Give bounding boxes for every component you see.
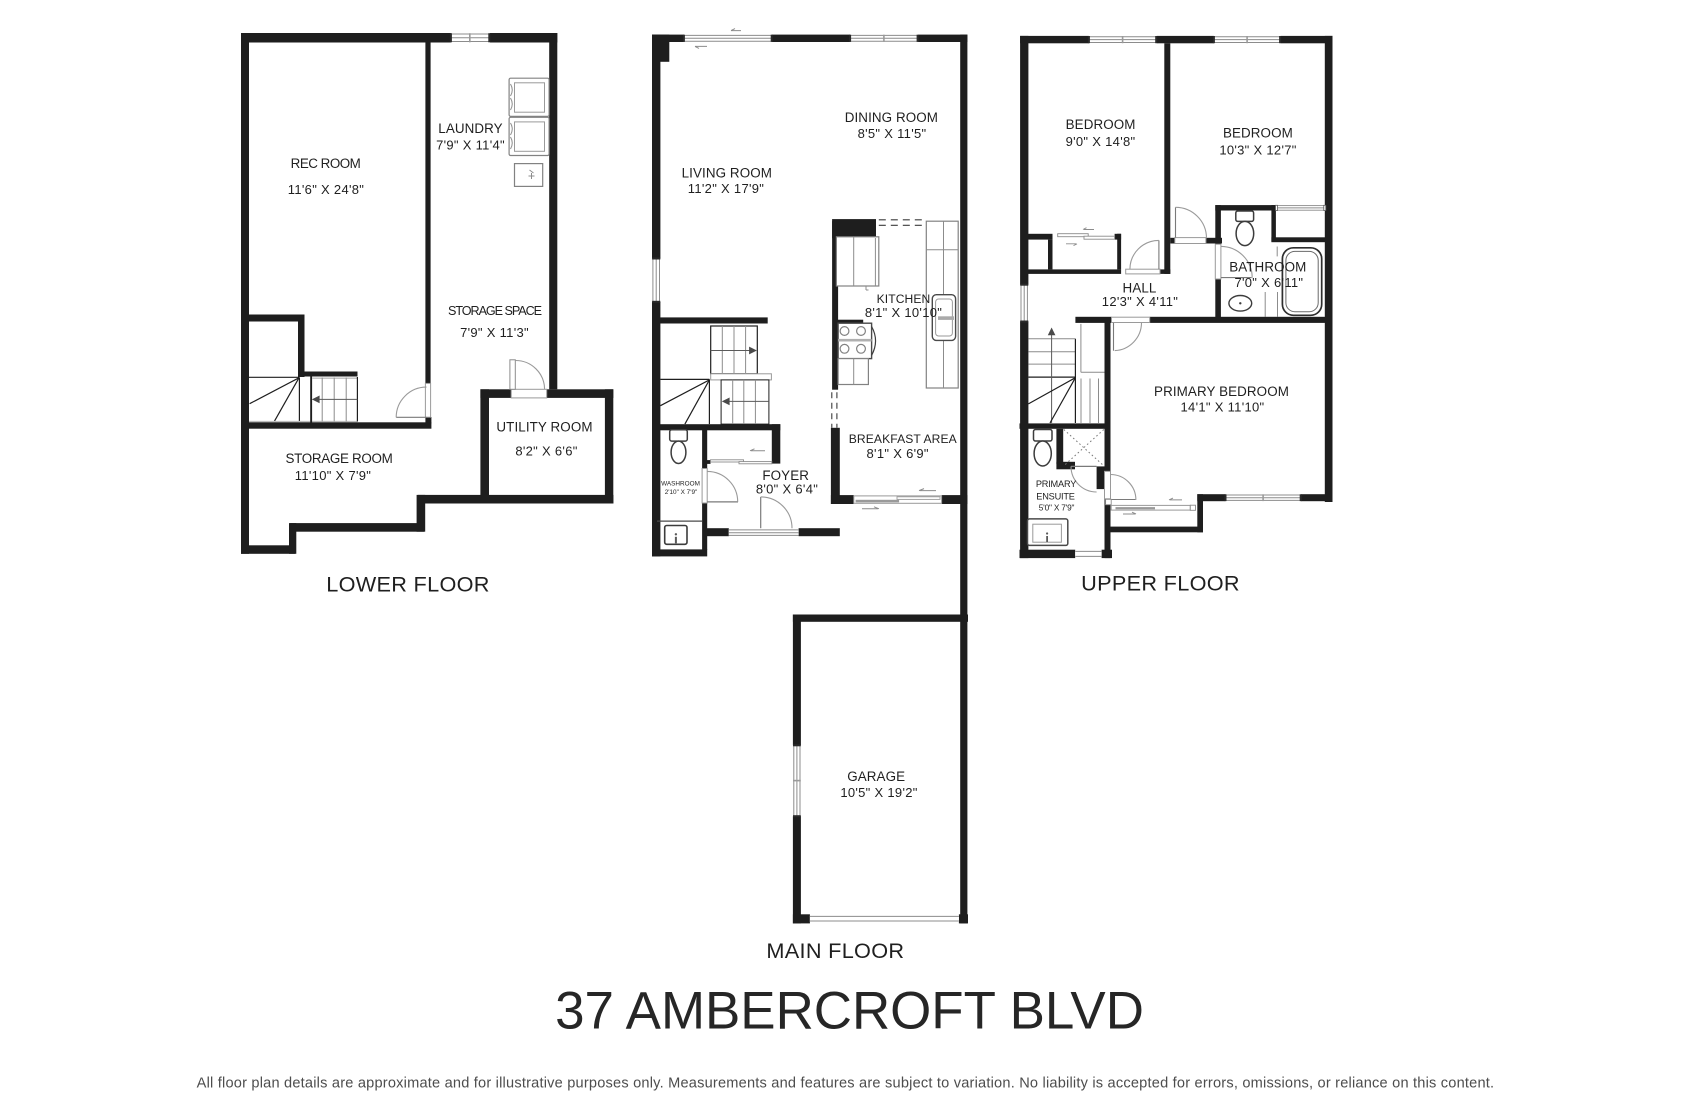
svg-text:7'0" X 6'11": 7'0" X 6'11": [1234, 275, 1303, 290]
svg-text:LOWER FLOOR: LOWER FLOOR: [326, 572, 490, 597]
svg-text:12'3" X 4'11": 12'3" X 4'11": [1102, 294, 1178, 309]
svg-text:DINING ROOM: DINING ROOM: [845, 110, 938, 125]
svg-text:MAIN FLOOR: MAIN FLOOR: [766, 938, 904, 963]
svg-text:BREAKFAST AREA: BREAKFAST AREA: [849, 432, 958, 446]
svg-text:11'2" X 17'9": 11'2" X 17'9": [688, 181, 764, 196]
svg-text:KITCHEN: KITCHEN: [877, 292, 931, 306]
svg-text:ENSUITE: ENSUITE: [1036, 492, 1074, 502]
svg-text:11'6" X 24'8": 11'6" X 24'8": [288, 182, 364, 197]
svg-text:8'5" X 11'5": 8'5" X 11'5": [858, 126, 927, 141]
svg-text:5'0" X 7'9": 5'0" X 7'9": [1039, 503, 1075, 513]
svg-text:14'1" X 11'10": 14'1" X 11'10": [1181, 399, 1265, 414]
svg-text:STORAGE SPACE: STORAGE SPACE: [448, 304, 542, 318]
svg-text:PRIMARY: PRIMARY: [1036, 479, 1076, 489]
svg-text:WASHROOM: WASHROOM: [661, 480, 700, 487]
svg-text:2'10" X 7'9": 2'10" X 7'9": [665, 489, 698, 496]
svg-text:UTILITY ROOM: UTILITY ROOM: [496, 420, 592, 435]
svg-text:LIVING ROOM: LIVING ROOM: [682, 166, 772, 181]
svg-text:8'0" X 6'4": 8'0" X 6'4": [756, 482, 818, 497]
svg-text:8'1" X 6'9": 8'1" X 6'9": [867, 446, 929, 461]
svg-text:All floor plan details are app: All floor plan details are approximate a…: [197, 1076, 1495, 1092]
svg-text:11'10" X 7'9": 11'10" X 7'9": [295, 468, 371, 483]
svg-text:BEDROOM: BEDROOM: [1066, 117, 1136, 132]
svg-text:BATHROOM: BATHROOM: [1229, 260, 1306, 275]
svg-text:9'0" X 14'8": 9'0" X 14'8": [1066, 134, 1136, 149]
svg-text:7'9" X 11'4": 7'9" X 11'4": [436, 137, 505, 152]
svg-text:REC ROOM: REC ROOM: [291, 156, 361, 171]
svg-text:7'9" X 11'3": 7'9" X 11'3": [460, 325, 529, 340]
svg-text:STORAGE ROOM: STORAGE ROOM: [285, 451, 392, 466]
svg-text:8'2" X 6'6": 8'2" X 6'6": [515, 444, 577, 459]
svg-text:37 AMBERCROFT BLVD: 37 AMBERCROFT BLVD: [555, 982, 1144, 1041]
svg-text:BEDROOM: BEDROOM: [1223, 126, 1293, 141]
svg-text:8'1" X 10'10": 8'1" X 10'10": [865, 305, 942, 320]
svg-text:LAUNDRY: LAUNDRY: [438, 121, 502, 136]
svg-text:10'3" X 12'7": 10'3" X 12'7": [1219, 143, 1296, 158]
svg-text:UPPER FLOOR: UPPER FLOOR: [1081, 571, 1240, 596]
svg-text:10'5" X 19'2": 10'5" X 19'2": [840, 785, 917, 800]
svg-text:PRIMARY BEDROOM: PRIMARY BEDROOM: [1154, 384, 1289, 399]
svg-text:GARAGE: GARAGE: [847, 769, 905, 784]
